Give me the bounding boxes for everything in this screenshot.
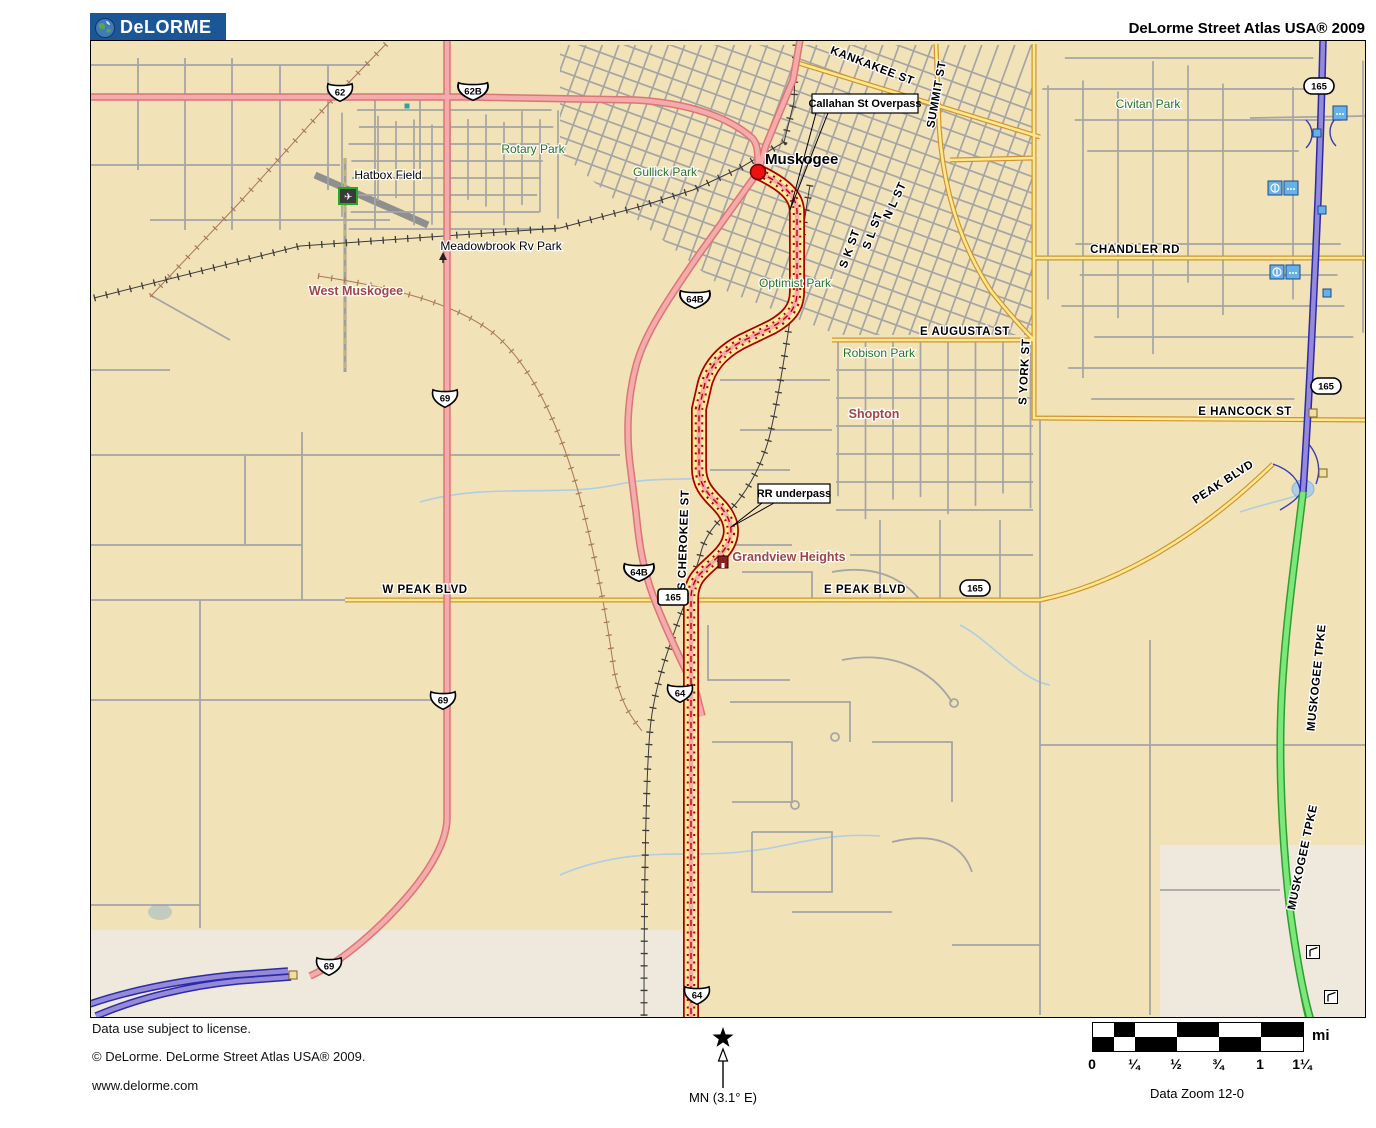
website-text: www.delorme.com — [92, 1078, 198, 1093]
park-label: Rotary Park — [501, 142, 565, 156]
scale-tick: ¼ — [1119, 1056, 1149, 1072]
scale-unit-label: mi — [1312, 1027, 1330, 1044]
svg-text:64: 64 — [692, 990, 703, 1001]
exit-icon — [1318, 206, 1326, 214]
teal-icon — [405, 104, 410, 109]
exit-icon — [1313, 129, 1321, 137]
scale-segment — [1135, 1023, 1177, 1037]
scale-tick-labels: 0¼½¾11¼ — [1077, 1056, 1317, 1072]
data-zoom-label: Data Zoom 12-0 — [1092, 1086, 1302, 1101]
scale-segment — [1219, 1023, 1261, 1037]
street-label: E PEAK BLVD — [824, 584, 906, 596]
airport-icon: ✈ — [339, 188, 357, 204]
yexit-icon — [1309, 409, 1317, 417]
north-arrow-icon — [700, 1025, 746, 1095]
scale-segment — [1093, 1023, 1114, 1037]
delorme-logo: DeLORME — [90, 13, 226, 42]
park-label: Gullick Park — [633, 165, 698, 179]
land-lowlight-sw — [90, 930, 700, 1018]
globe-icon — [94, 17, 116, 39]
dots-icon — [1333, 106, 1347, 120]
license-text: Data use subject to license. — [92, 1021, 251, 1036]
building-icon — [718, 556, 728, 568]
scale-segment — [1093, 1037, 1114, 1051]
scale-segment — [1261, 1037, 1303, 1051]
yexit-icon — [289, 971, 297, 979]
svg-text:69: 69 — [438, 695, 449, 706]
svg-text:✈: ✈ — [344, 192, 352, 203]
scale-tick: 1 — [1245, 1056, 1275, 1072]
toll-icon — [1325, 991, 1338, 1004]
app-title: DeLorme Street Atlas USA® 2009 — [1129, 20, 1365, 37]
place-label: West Muskogee — [309, 284, 403, 298]
logo-text: DeLORME — [120, 17, 212, 38]
exit-icon — [1323, 289, 1331, 297]
scale-segment — [1177, 1037, 1219, 1051]
poi-label: Meadowbrook Rv Park — [440, 239, 562, 253]
scale-tick: ½ — [1161, 1056, 1191, 1072]
route-shield: 165 — [1311, 378, 1341, 394]
svg-text:165: 165 — [1311, 81, 1328, 92]
svg-text:64: 64 — [675, 688, 686, 699]
svg-text:69: 69 — [440, 393, 451, 404]
scale-segment — [1177, 1023, 1219, 1037]
scale-segment — [1114, 1037, 1135, 1051]
svg-text:69: 69 — [324, 961, 335, 972]
scale-tick: 1¼ — [1287, 1056, 1317, 1072]
magnetic-north-label: MN (3.1° E) — [653, 1090, 793, 1105]
scale-segment — [1114, 1023, 1135, 1037]
svg-text:62: 62 — [335, 87, 346, 98]
toll-icon — [1307, 946, 1320, 959]
svg-text:62B: 62B — [464, 86, 482, 97]
route-shield: 165 — [1304, 78, 1334, 94]
app-window: DeLORME DeLorme Street Atlas USA® 2009 — [0, 0, 1376, 1128]
place-label: Grandview Heights — [732, 550, 845, 564]
svg-text:64B: 64B — [686, 294, 704, 305]
route-shield: 165 — [960, 580, 990, 596]
copyright-text: © DeLorme. DeLorme Street Atlas USA® 200… — [92, 1049, 366, 1064]
street-label: E HANCOCK ST — [1198, 406, 1292, 418]
street-label: CHANDLER RD — [1090, 244, 1180, 256]
svg-text:165: 165 — [1318, 381, 1335, 392]
scale-tick: ¾ — [1203, 1056, 1233, 1072]
svg-text:64B: 64B — [630, 567, 648, 578]
scale-segment — [1135, 1037, 1177, 1051]
park-label: Robison Park — [843, 346, 916, 360]
scale-tick: 0 — [1077, 1056, 1107, 1072]
svg-text:Callahan St Overpass: Callahan St Overpass — [808, 98, 921, 110]
street-label: W PEAK BLVD — [382, 584, 467, 596]
scale-segment — [1219, 1037, 1261, 1051]
city-dot-icon — [751, 165, 766, 180]
map-viewport[interactable]: ✈ KANKAKEE STSUMMIT STN L STS L STS K ST… — [90, 40, 1366, 1018]
street-label: E AUGUSTA ST — [920, 326, 1010, 338]
poi-label: Hatbox Field — [354, 168, 421, 182]
route-shield: 165 — [658, 589, 688, 605]
svg-text:165: 165 — [967, 583, 984, 594]
scale-segment — [1261, 1023, 1303, 1037]
park-label: Civitan Park — [1116, 97, 1182, 111]
pond — [148, 904, 172, 920]
svg-text:165: 165 — [665, 592, 682, 603]
yexit-icon — [1319, 469, 1327, 477]
park-label: Optimist Park — [759, 276, 832, 290]
scale-bar — [1092, 1022, 1304, 1052]
svg-text:RR underpass: RR underpass — [757, 488, 832, 500]
place-label: Shopton — [849, 407, 900, 421]
